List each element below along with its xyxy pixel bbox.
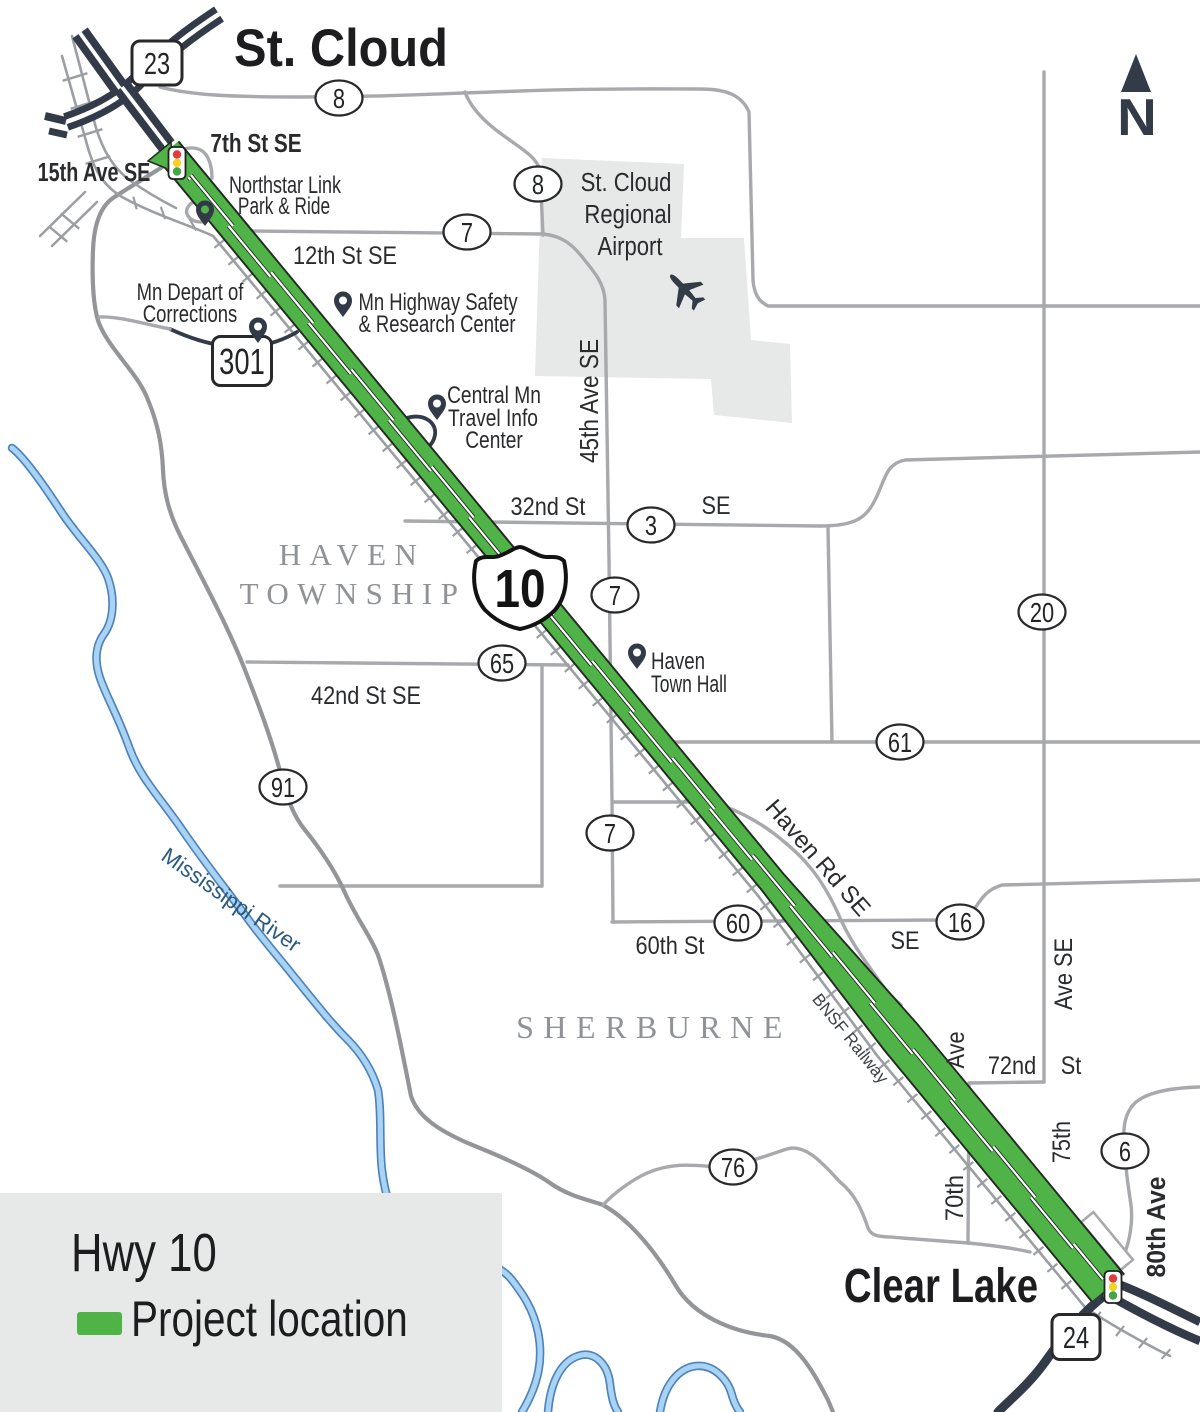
svg-text:7: 7 [604, 818, 616, 849]
svg-text:St. Cloud: St. Cloud [581, 168, 672, 197]
svg-text:12th St SE: 12th St SE [293, 242, 397, 270]
svg-text:20: 20 [1030, 597, 1054, 628]
svg-text:Ave SE: Ave SE [1050, 938, 1078, 1010]
svg-text:Corrections: Corrections [143, 301, 237, 328]
svg-text:SE: SE [701, 492, 730, 520]
svg-text:Ave: Ave [942, 1031, 970, 1068]
svg-text:8: 8 [333, 83, 345, 114]
svg-text:7: 7 [461, 217, 473, 248]
svg-text:45th Ave SE: 45th Ave SE [576, 339, 605, 463]
svg-text:Center: Center [465, 426, 523, 454]
svg-text:8: 8 [532, 169, 544, 200]
svg-text:HAVEN: HAVEN [279, 537, 426, 572]
svg-text:60: 60 [726, 908, 750, 939]
svg-text:Regional: Regional [584, 200, 671, 229]
svg-text:32nd St: 32nd St [511, 493, 586, 521]
svg-text:6: 6 [1119, 1136, 1131, 1167]
svg-text:61: 61 [888, 727, 912, 758]
svg-text:15th Ave SE: 15th Ave SE [38, 157, 151, 186]
svg-text:91: 91 [271, 772, 295, 803]
svg-text:Project location: Project location [131, 1291, 408, 1347]
svg-text:SE: SE [890, 927, 919, 955]
svg-text:Clear Lake: Clear Lake [844, 1260, 1038, 1313]
svg-text:TOWNSHIP: TOWNSHIP [240, 576, 467, 611]
svg-text:16: 16 [948, 907, 972, 938]
svg-text:80th Ave: 80th Ave [1142, 1176, 1171, 1277]
svg-text:301: 301 [219, 341, 265, 382]
svg-text:42nd St SE: 42nd St SE [311, 682, 421, 710]
svg-text:10: 10 [494, 559, 545, 619]
svg-text:3: 3 [645, 510, 657, 541]
svg-text:75th: 75th [1048, 1121, 1076, 1163]
svg-text:SHERBURNE: SHERBURNE [516, 1009, 792, 1045]
svg-text:St: St [1061, 1052, 1082, 1080]
svg-text:72nd: 72nd [988, 1052, 1036, 1080]
svg-text:St. Cloud: St. Cloud [234, 18, 448, 77]
svg-text:60th St: 60th St [636, 932, 705, 960]
svg-text:7: 7 [609, 580, 621, 611]
svg-text:Park & Ride: Park & Ride [238, 193, 330, 219]
svg-text:23: 23 [144, 46, 170, 81]
svg-text:Mississippi River: Mississippi River [157, 843, 306, 957]
svg-text:N: N [1117, 89, 1156, 147]
svg-text:65: 65 [490, 648, 514, 679]
svg-text:Town Hall: Town Hall [651, 671, 727, 697]
svg-text:Airport: Airport [597, 232, 662, 261]
svg-text:7th St SE: 7th St SE [210, 129, 301, 158]
svg-text:76: 76 [721, 1152, 745, 1183]
svg-text:Hwy 10: Hwy 10 [71, 1224, 217, 1283]
svg-text:& Research Center: & Research Center [358, 311, 515, 338]
svg-text:24: 24 [1063, 1320, 1089, 1355]
svg-text:70th: 70th [941, 1175, 969, 1221]
